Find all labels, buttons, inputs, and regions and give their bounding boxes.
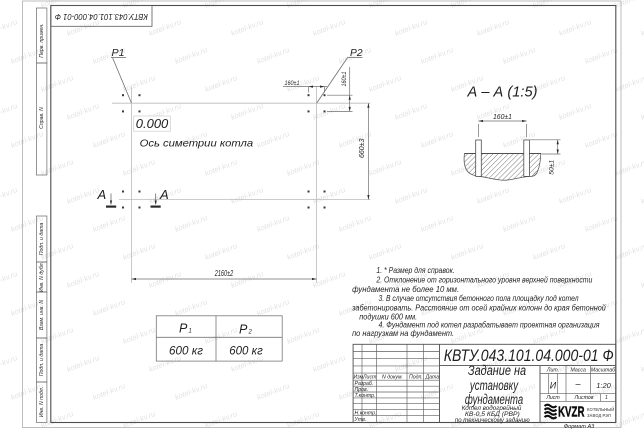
svg-text:kotel-kv.ru: kotel-kv.ru	[203, 157, 239, 178]
svg-text:kotel-kv.ru: kotel-kv.ru	[449, 0, 485, 10]
svg-text:1: 1	[189, 329, 192, 335]
svg-text:kotel-kv.ru: kotel-kv.ru	[173, 297, 209, 318]
svg-text:Подп.: Подп.	[409, 375, 423, 381]
svg-text:kotel-kv.ru: kotel-kv.ru	[285, 325, 321, 346]
svg-text:Инв. N дубл.: Инв. N дубл.	[39, 262, 45, 292]
svg-text:2: 2	[248, 329, 253, 335]
svg-text:kotel-kv.ru: kotel-kv.ru	[613, 409, 644, 430]
svg-text:kotel-kv.ru: kotel-kv.ru	[9, 129, 45, 150]
svg-text:kotel-kv.ru: kotel-kv.ru	[613, 0, 644, 10]
svg-text:забетонировать. Расстояние от: забетонировать. Расстояние от осей крайн…	[351, 304, 606, 313]
svg-text:kotel-kv.ru: kotel-kv.ru	[337, 213, 373, 234]
svg-text:kotel-kv.ru: kotel-kv.ru	[121, 73, 157, 94]
svg-text:kotel-kv.ru: kotel-kv.ru	[285, 0, 321, 10]
svg-text:kotel-kv.ru: kotel-kv.ru	[393, 17, 429, 38]
svg-text:kotel-kv.ru: kotel-kv.ru	[367, 157, 403, 178]
svg-text:P: P	[179, 322, 188, 336]
svg-text:kotel-kv.ru: kotel-kv.ru	[639, 269, 644, 290]
svg-text:kotel-kv.ru: kotel-kv.ru	[393, 185, 429, 206]
svg-text:Лист: Лист	[545, 395, 560, 401]
svg-text:Т.контр.: Т.контр.	[355, 393, 376, 399]
svg-text:А: А	[97, 187, 107, 202]
svg-text:3. В случае отсутствия бетонно: 3. В случае отсутствия бетонного пола пл…	[379, 294, 579, 303]
svg-text:kotel-kv.ru: kotel-kv.ru	[285, 157, 321, 178]
svg-text:Листов: Листов	[574, 395, 594, 401]
svg-text:Справ. N: Справ. N	[39, 107, 45, 129]
svg-text:по техническому заданию: по техническому заданию	[455, 416, 530, 424]
svg-text:kotel-kv.ru: kotel-kv.ru	[39, 73, 75, 94]
svg-text:Подп. и дата: Подп. и дата	[39, 223, 45, 256]
svg-text:kotel-kv.ru: kotel-kv.ru	[255, 213, 291, 234]
svg-text:kotel-kv.ru: kotel-kv.ru	[255, 129, 291, 150]
svg-text:kotel-kv.ru: kotel-kv.ru	[147, 17, 183, 38]
svg-text:kotel-kv.ru: kotel-kv.ru	[0, 185, 19, 206]
svg-text:Инв. N подл.: Инв. N подл.	[39, 387, 45, 417]
svg-text:N докум.: N докум.	[382, 375, 403, 381]
svg-text:Лит.: Лит.	[546, 367, 559, 373]
svg-text:kotel-kv.ru: kotel-kv.ru	[255, 45, 291, 66]
svg-text:kotel-kv.ru: kotel-kv.ru	[613, 73, 644, 94]
svg-text:160±1: 160±1	[285, 80, 300, 87]
svg-text:kotel-kv.ru: kotel-kv.ru	[613, 241, 644, 262]
svg-text:kotel-kv.ru: kotel-kv.ru	[229, 269, 265, 290]
svg-text:KVZR: KVZR	[558, 405, 585, 421]
svg-text:kotel-kv.ru: kotel-kv.ru	[65, 185, 101, 206]
svg-text:КВТУ.043.101.04.000-01 Ф: КВТУ.043.101.04.000-01 Ф	[55, 12, 148, 22]
svg-text:И: И	[550, 381, 557, 391]
svg-text:kotel-kv.ru: kotel-kv.ru	[0, 101, 19, 122]
svg-text:–: –	[574, 379, 581, 389]
svg-text:kotel-kv.ru: kotel-kv.ru	[121, 241, 157, 262]
svg-text:kotel-kv.ru: kotel-kv.ru	[475, 185, 511, 206]
svg-text:kotel-kv.ru: kotel-kv.ru	[229, 185, 265, 206]
svg-text:по нагрузкам на фундамент.: по нагрузкам на фундамент.	[352, 329, 454, 338]
svg-text:kotel-kv.ru: kotel-kv.ru	[531, 0, 567, 10]
svg-text:kotel-kv.ru: kotel-kv.ru	[255, 381, 291, 402]
svg-text:kotel-kv.ru: kotel-kv.ru	[419, 45, 455, 66]
svg-text:kotel-kv.ru: kotel-kv.ru	[203, 73, 239, 94]
svg-text:kotel-kv.ru: kotel-kv.ru	[121, 325, 157, 346]
svg-text:160±1: 160±1	[493, 112, 512, 121]
svg-text:1: 1	[605, 395, 608, 401]
svg-text:kotel-kv.ru: kotel-kv.ru	[147, 269, 183, 290]
svg-text:Н.контр.: Н.контр.	[355, 411, 377, 417]
svg-text:kotel-kv.ru: kotel-kv.ru	[419, 213, 455, 234]
svg-text:600 кг: 600 кг	[169, 343, 203, 357]
svg-text:kotel-kv.ru: kotel-kv.ru	[285, 409, 321, 430]
svg-text:КОТЕЛЬНЫЙ: КОТЕЛЬНЫЙ	[587, 405, 615, 413]
svg-text:Ось симетрии котла: Ось симетрии котла	[140, 137, 254, 149]
svg-text:kotel-kv.ru: kotel-kv.ru	[613, 325, 644, 346]
svg-text:kotel-kv.ru: kotel-kv.ru	[449, 241, 485, 262]
svg-text:kotel-kv.ru: kotel-kv.ru	[419, 129, 455, 150]
svg-text:50±1: 50±1	[549, 160, 556, 175]
svg-text:kotel-kv.ru: kotel-kv.ru	[557, 17, 593, 38]
svg-text:kotel-kv.ru: kotel-kv.ru	[0, 353, 19, 374]
svg-text:Взам. инв. N: Взам. инв. N	[39, 300, 45, 330]
svg-text:kotel-kv.ru: kotel-kv.ru	[367, 0, 403, 10]
svg-text:kotel-kv.ru: kotel-kv.ru	[583, 45, 619, 66]
svg-text:kotel-kv.ru: kotel-kv.ru	[203, 409, 239, 430]
svg-text:kotel-kv.ru: kotel-kv.ru	[501, 45, 537, 66]
svg-text:kotel-kv.ru: kotel-kv.ru	[583, 213, 619, 234]
svg-text:kotel-kv.ru: kotel-kv.ru	[203, 241, 239, 262]
svg-text:P: P	[239, 322, 248, 336]
svg-text:kotel-kv.ru: kotel-kv.ru	[367, 241, 403, 262]
svg-text:kotel-kv.ru: kotel-kv.ru	[501, 213, 537, 234]
svg-text:kotel-kv.ru: kotel-kv.ru	[531, 241, 567, 262]
svg-text:2. Отклонение от горизонтально: 2. Отклонение от горизонтального уровня …	[376, 276, 593, 285]
svg-text:kotel-kv.ru: kotel-kv.ru	[557, 185, 593, 206]
svg-text:kotel-kv.ru: kotel-kv.ru	[639, 185, 644, 206]
svg-text:2160±2: 2160±2	[214, 269, 234, 278]
svg-text:660±3: 660±3	[357, 138, 366, 158]
svg-text:ЗАВОД РЭП: ЗАВОД РЭП	[587, 413, 611, 419]
svg-text:kotel-kv.ru: kotel-kv.ru	[393, 101, 429, 122]
svg-text:kotel-kv.ru: kotel-kv.ru	[475, 17, 511, 38]
svg-text:600 кг: 600 кг	[229, 344, 263, 358]
svg-text:kotel-kv.ru: kotel-kv.ru	[337, 129, 373, 150]
svg-text:kotel-kv.ru: kotel-kv.ru	[65, 353, 101, 374]
svg-text:kotel-kv.ru: kotel-kv.ru	[229, 101, 265, 122]
svg-text:kotel-kv.ru: kotel-kv.ru	[639, 17, 644, 38]
svg-text:kotel-kv.ru: kotel-kv.ru	[311, 353, 347, 374]
svg-text:kotel-kv.ru: kotel-kv.ru	[173, 213, 209, 234]
svg-text:kotel-kv.ru: kotel-kv.ru	[203, 0, 239, 10]
svg-text:kotel-kv.ru: kotel-kv.ru	[0, 17, 19, 38]
svg-text:kotel-kv.ru: kotel-kv.ru	[613, 157, 644, 178]
svg-text:фундамента не более 10 мм.: фундамента не более 10 мм.	[352, 285, 459, 294]
svg-text:kotel-kv.ru: kotel-kv.ru	[91, 129, 127, 150]
svg-text:kotel-kv.ru: kotel-kv.ru	[367, 73, 403, 94]
svg-text:kotel-kv.ru: kotel-kv.ru	[229, 17, 265, 38]
svg-text:Масса: Масса	[571, 367, 586, 373]
svg-text:Лист: Лист	[362, 375, 377, 381]
svg-text:Утв.: Утв.	[355, 417, 367, 423]
svg-text:А – А (1:5): А – А (1:5)	[467, 84, 538, 101]
svg-text:kotel-kv.ru: kotel-kv.ru	[91, 297, 127, 318]
svg-text:kotel-kv.ru: kotel-kv.ru	[91, 381, 127, 402]
svg-text:kotel-kv.ru: kotel-kv.ru	[173, 381, 209, 402]
svg-text:установку: установку	[469, 378, 519, 393]
svg-text:kotel-kv.ru: kotel-kv.ru	[173, 45, 209, 66]
svg-text:kotel-kv.ru: kotel-kv.ru	[285, 241, 321, 262]
svg-text:kotel-kv.ru: kotel-kv.ru	[255, 297, 291, 318]
svg-text:kotel-kv.ru: kotel-kv.ru	[501, 129, 537, 150]
svg-text:160±1: 160±1	[341, 71, 348, 86]
svg-text:kotel-kv.ru: kotel-kv.ru	[311, 17, 347, 38]
svg-text:Дата: Дата	[425, 375, 440, 381]
svg-text:kotel-kv.ru: kotel-kv.ru	[91, 213, 127, 234]
svg-text:kotel-kv.ru: kotel-kv.ru	[121, 409, 157, 430]
svg-text:kotel-kv.ru: kotel-kv.ru	[121, 157, 157, 178]
svg-text:kotel-kv.ru: kotel-kv.ru	[583, 129, 619, 150]
svg-text:kotel-kv.ru: kotel-kv.ru	[639, 101, 644, 122]
svg-text:1:20: 1:20	[596, 381, 611, 390]
svg-text:kotel-kv.ru: kotel-kv.ru	[65, 101, 101, 122]
svg-text:Масштаб: Масштаб	[591, 367, 616, 373]
svg-text:0.000: 0.000	[136, 116, 169, 131]
svg-text:Задание на: Задание на	[468, 363, 527, 378]
svg-text:kotel-kv.ru: kotel-kv.ru	[39, 0, 75, 10]
svg-text:kotel-kv.ru: kotel-kv.ru	[419, 381, 455, 402]
svg-text:Формат А3: Формат А3	[564, 424, 595, 430]
svg-text:kotel-kv.ru: kotel-kv.ru	[639, 353, 644, 374]
svg-text:Подп. и дата: Подп. и дата	[39, 344, 45, 377]
svg-text:1. * Размер для справок.: 1. * Размер для справок.	[376, 266, 454, 275]
svg-text:Перв. примен.: Перв. примен.	[39, 23, 45, 57]
svg-text:kotel-kv.ru: kotel-kv.ru	[0, 269, 19, 290]
svg-text:kotel-kv.ru: kotel-kv.ru	[65, 269, 101, 290]
svg-text:kotel-kv.ru: kotel-kv.ru	[557, 101, 593, 122]
svg-text:kotel-kv.ru: kotel-kv.ru	[393, 353, 429, 374]
svg-text:А: А	[159, 187, 169, 202]
